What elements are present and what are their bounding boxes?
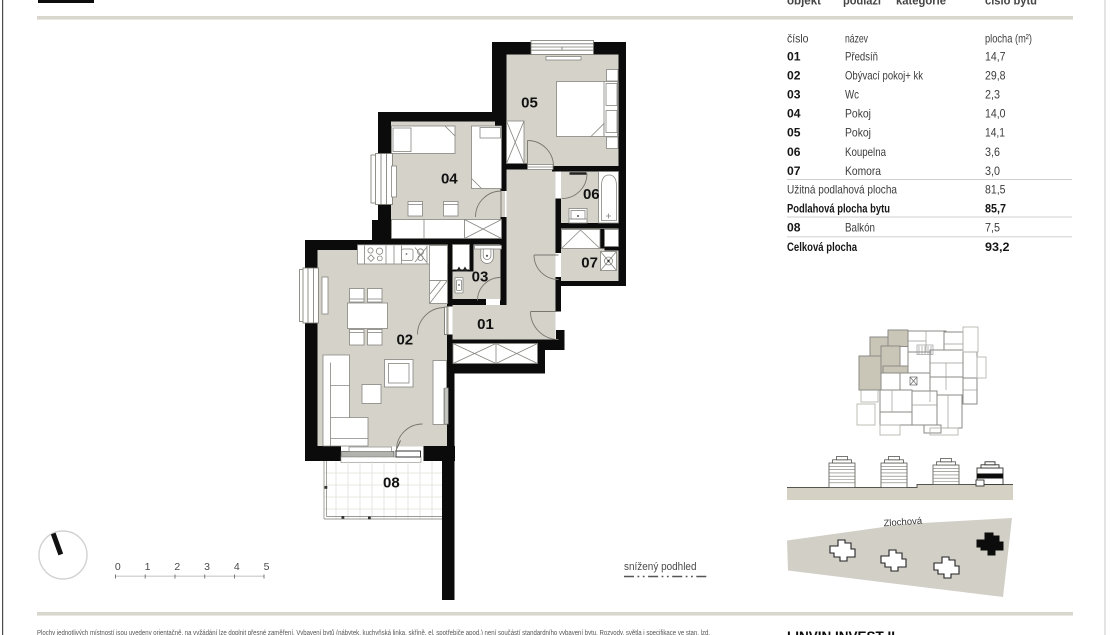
svg-text:29,8: 29,8 [985,69,1006,83]
svg-text:05: 05 [787,126,801,140]
svg-text:14,7: 14,7 [985,50,1006,64]
svg-text:7,5: 7,5 [985,221,1000,235]
svg-text:02: 02 [396,332,413,349]
svg-text:81,5: 81,5 [985,183,1006,197]
svg-text:0: 0 [115,561,121,573]
svg-text:2,3: 2,3 [985,88,1000,102]
svg-text:Balkón: Balkón [845,221,875,235]
svg-text:Pokoj: Pokoj [845,126,871,140]
svg-text:04: 04 [441,171,458,188]
svg-text:číslo: číslo [787,32,809,46]
svg-text:Podlahová plocha bytu: Podlahová plocha bytu [787,202,890,216]
svg-text:kategorie: kategorie [896,0,946,8]
svg-text:2: 2 [174,561,180,573]
svg-text:07: 07 [581,255,598,272]
svg-text:03: 03 [472,269,489,286]
svg-text:objekt: objekt [787,0,821,8]
svg-text:Obývací pokoj+ kk: Obývací pokoj+ kk [845,69,924,83]
svg-text:02: 02 [787,69,801,83]
svg-text:08: 08 [787,221,801,235]
svg-text:3,6: 3,6 [985,145,1000,159]
svg-text:podlaží: podlaží [843,0,882,8]
svg-text:Koupelna: Koupelna [845,145,886,159]
svg-text:název: název [845,32,868,46]
svg-text:3: 3 [204,561,210,573]
svg-text:Užitná podlahová plocha: Užitná podlahová plocha [787,183,897,197]
svg-text:04: 04 [787,107,801,121]
svg-text:Celková plocha: Celková plocha [787,240,857,254]
svg-text:číslo bytu: číslo bytu [985,0,1037,8]
svg-text:Wc: Wc [845,88,859,102]
svg-text:3,0: 3,0 [985,164,1000,178]
svg-text:03: 03 [787,88,801,102]
svg-text:4: 4 [234,561,240,573]
svg-text:05: 05 [521,95,538,112]
svg-text:01: 01 [787,50,801,64]
svg-text:Plochy jednotlivých místností: Plochy jednotlivých místností jsou uvede… [37,629,710,635]
svg-text:14,1: 14,1 [985,126,1005,140]
svg-text:Komora: Komora [845,164,881,178]
svg-text:07: 07 [787,164,801,178]
svg-text:85,7: 85,7 [985,202,1006,216]
svg-text:06: 06 [787,145,801,159]
svg-text:06: 06 [583,186,600,203]
svg-text:14,0: 14,0 [985,107,1006,121]
svg-text:1: 1 [145,561,151,573]
svg-text:93,2: 93,2 [985,240,1010,254]
svg-text:5: 5 [264,561,270,573]
svg-text:08: 08 [383,475,400,492]
svg-text:plocha (m²): plocha (m²) [985,32,1032,46]
svg-text:snížený podhled: snížený podhled [624,561,697,573]
svg-text:LINVIN INVEST II: LINVIN INVEST II [787,629,895,635]
svg-text:Pokoj: Pokoj [845,107,871,121]
svg-text:Předsíň: Předsíň [845,50,878,64]
svg-text:01: 01 [477,316,494,333]
